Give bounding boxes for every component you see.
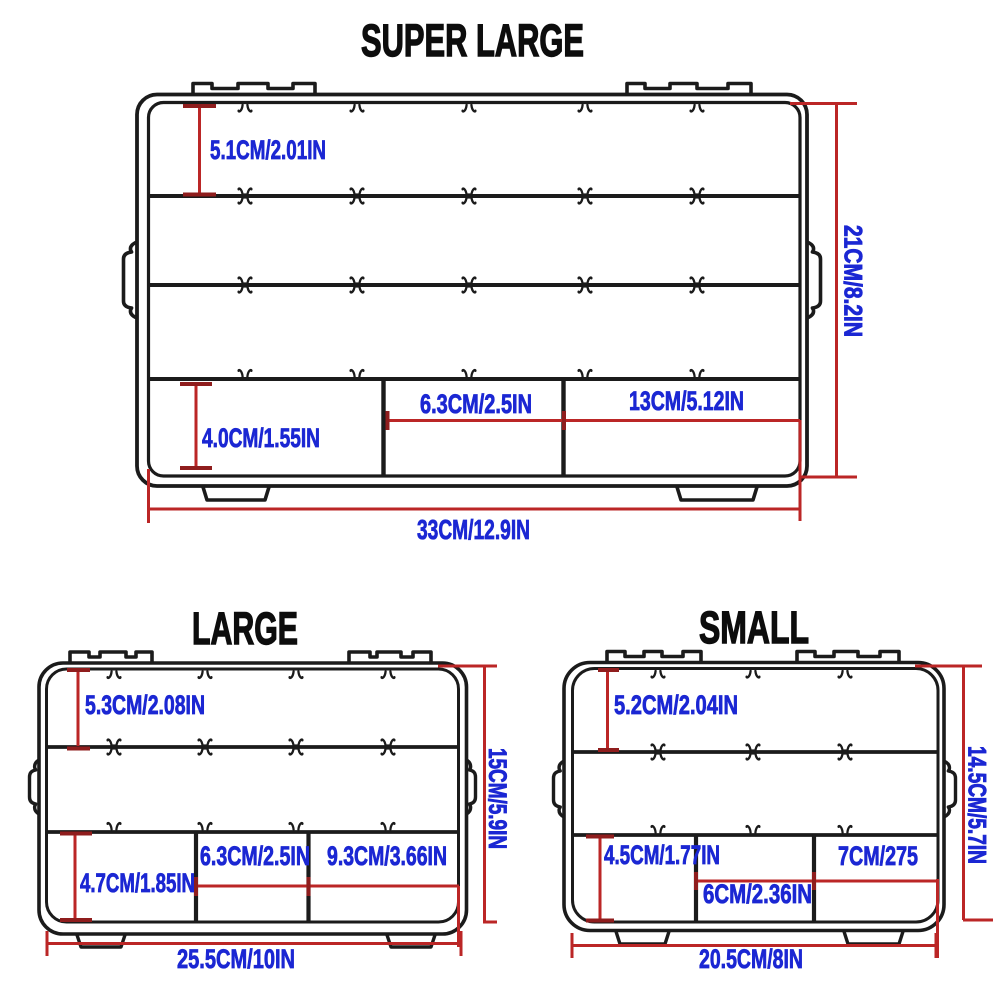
svg-text:15CM/5.9IN: 15CM/5.9IN (483, 748, 511, 849)
svg-text:14.5CM/5.7IN: 14.5CM/5.7IN (963, 746, 991, 864)
svg-text:25.5CM/10IN: 25.5CM/10IN (177, 944, 295, 974)
svg-text:6.3CM/2.5IN: 6.3CM/2.5IN (420, 389, 532, 419)
svg-text:4.7CM/1.85IN: 4.7CM/1.85IN (80, 868, 195, 898)
svg-text:5.1CM/2.01IN: 5.1CM/2.01IN (210, 135, 326, 165)
svg-text:6.3CM/2.5IN: 6.3CM/2.5IN (200, 841, 310, 871)
svg-text:6CM/2.36IN: 6CM/2.36IN (703, 879, 812, 909)
svg-text:SUPER LARGE: SUPER LARGE (361, 15, 584, 66)
svg-text:33CM/12.9IN: 33CM/12.9IN (417, 514, 530, 545)
svg-text:SMALL: SMALL (699, 602, 809, 653)
svg-text:5.3CM/2.08IN: 5.3CM/2.08IN (85, 690, 205, 720)
svg-text:21CM/8.2IN: 21CM/8.2IN (839, 225, 867, 337)
svg-text:5.2CM/2.04IN: 5.2CM/2.04IN (614, 690, 738, 720)
svg-text:13CM/5.12IN: 13CM/5.12IN (629, 386, 744, 416)
svg-text:LARGE: LARGE (192, 603, 298, 654)
svg-text:20.5CM/8IN: 20.5CM/8IN (699, 944, 803, 974)
svg-text:4.0CM/1.55IN: 4.0CM/1.55IN (202, 423, 320, 453)
svg-text:7CM/275: 7CM/275 (838, 841, 918, 871)
svg-text:9.3CM/3.66IN: 9.3CM/3.66IN (327, 841, 447, 871)
svg-text:4.5CM/1.77IN: 4.5CM/1.77IN (604, 840, 720, 870)
